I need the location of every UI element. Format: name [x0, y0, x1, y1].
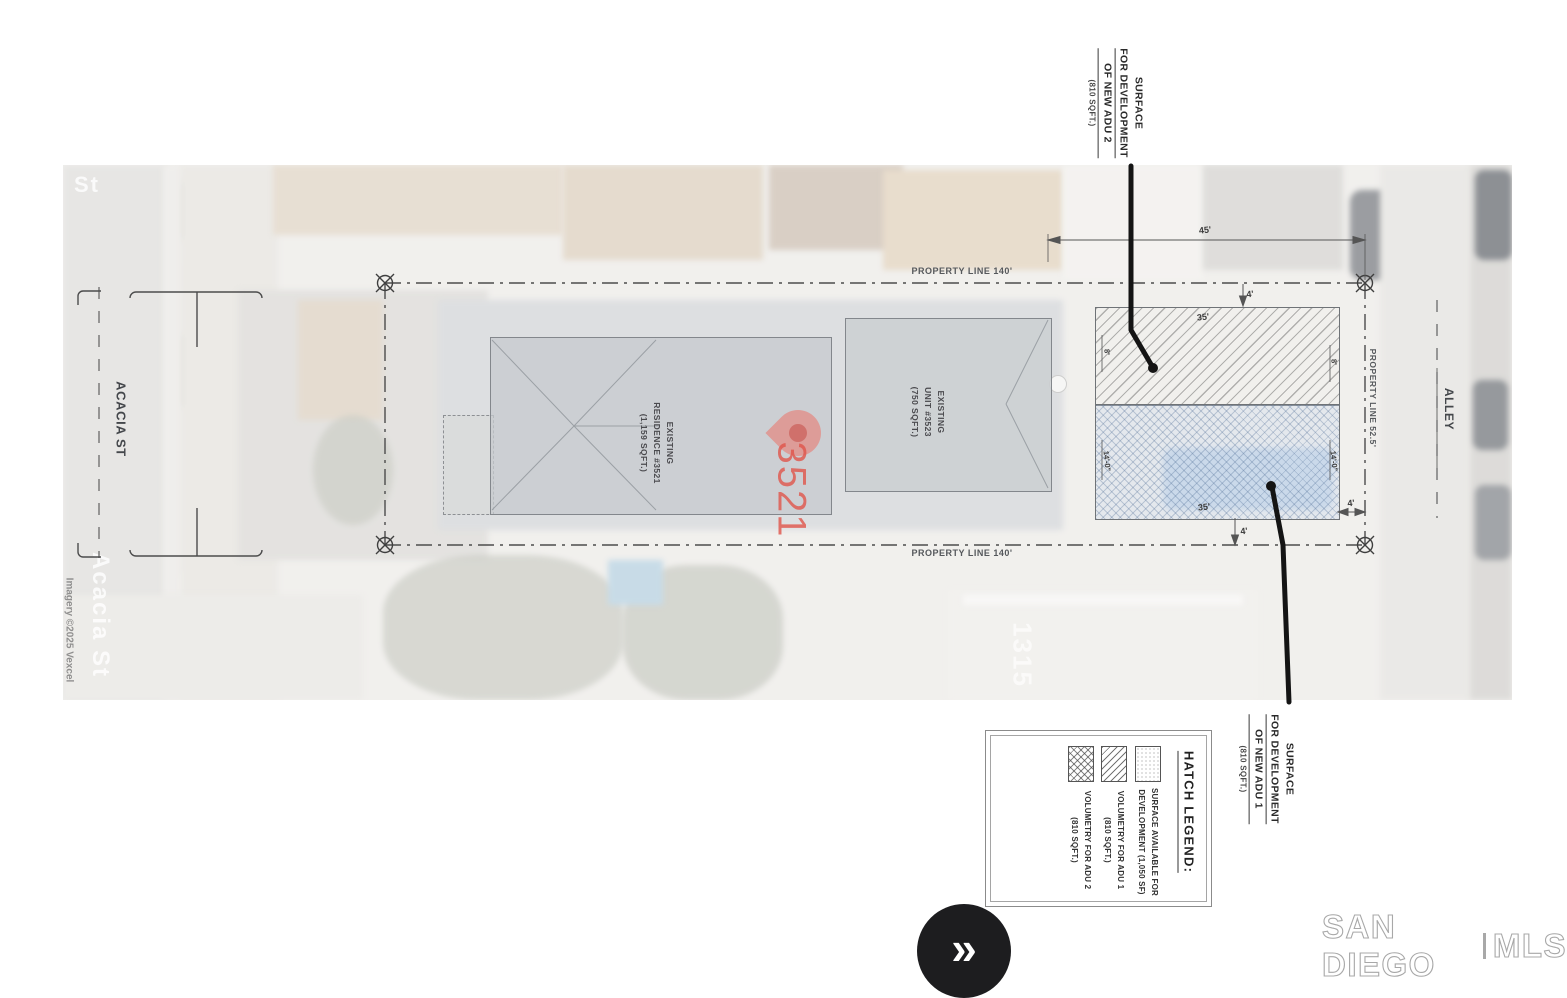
pin-address-number: 3521 [769, 442, 814, 539]
dim-side-upper-right: 8' [1329, 359, 1339, 366]
next-photo-button[interactable]: » [917, 904, 1011, 998]
property-line-label-right: PROPERTY LINE 52.5' [1368, 349, 1378, 448]
brand-left: SAN DIEGO [1322, 908, 1476, 984]
existing-unit-footprint [845, 318, 1052, 492]
adu1-development-surface [1095, 404, 1340, 520]
residence-extension-outline [443, 415, 494, 515]
legend-entry-adu1: VOLUMETRY FOR ADU 1 (810 SQFT.) [1100, 791, 1126, 890]
callout-adu2: SURFACE FOR DEVELOPMENT OF NEW ADU 2 (81… [1086, 48, 1145, 158]
legend-swatch-adu1 [1101, 746, 1127, 782]
adu2-development-surface [1095, 307, 1340, 406]
legend-entry-surface: SURFACE AVAILABLE FOR DEVELOPMENT (1,050… [1134, 788, 1160, 896]
legend-swatch-adu2 [1068, 746, 1094, 782]
chevron-double-right-icon: » [951, 922, 977, 974]
dim-setback-top: 4' [1246, 289, 1254, 300]
dim-setback-bottom: 4' [1240, 526, 1248, 537]
brand-divider [1483, 933, 1486, 959]
house-number-watermark: 1315 [1007, 622, 1038, 688]
sandiego-mls-watermark: SAN DIEGO MLS [1322, 908, 1567, 984]
legend-swatch-surface [1135, 746, 1161, 782]
callout-adu1: SURFACE FOR DEVELOPMENT OF NEW ADU 1 (81… [1237, 714, 1296, 824]
legend-inner-frame [990, 735, 1207, 902]
dim-top-width: 45' [1198, 224, 1211, 235]
imagery-credit: Imagery ©2025 Vexcel [64, 578, 75, 683]
legend-entry-adu2: VOLUMETRY FOR ADU 2 (810 SQFT.) [1067, 791, 1093, 890]
existing-residence-label: EXISTING RESIDENCE #3521 (1,159 SQFT.) [638, 402, 676, 484]
map-pin-dot [789, 424, 807, 442]
street-name-top: St [74, 172, 100, 198]
dim-side-upper-left: 8' [1102, 349, 1112, 356]
alley-label: ALLEY [1442, 388, 1456, 430]
existing-unit-label: EXISTING UNIT #3523 (750 SQFT.) [909, 387, 947, 438]
property-line-label-top: PROPERTY LINE 140' [911, 266, 1012, 276]
dim-adu-width-top: 35' [1196, 311, 1209, 322]
dim-setback-right: 4' [1347, 498, 1355, 509]
property-line-label-bottom: PROPERTY LINE 140' [911, 548, 1012, 558]
dim-adu-width-bottom: 35' [1197, 501, 1210, 512]
street-label-acacia: ACACIA ST [114, 381, 129, 457]
brand-right: MLS [1493, 927, 1567, 965]
legend-title: HATCH LEGEND: [1178, 751, 1197, 873]
street-name-watermark: Acacia St [86, 552, 114, 678]
